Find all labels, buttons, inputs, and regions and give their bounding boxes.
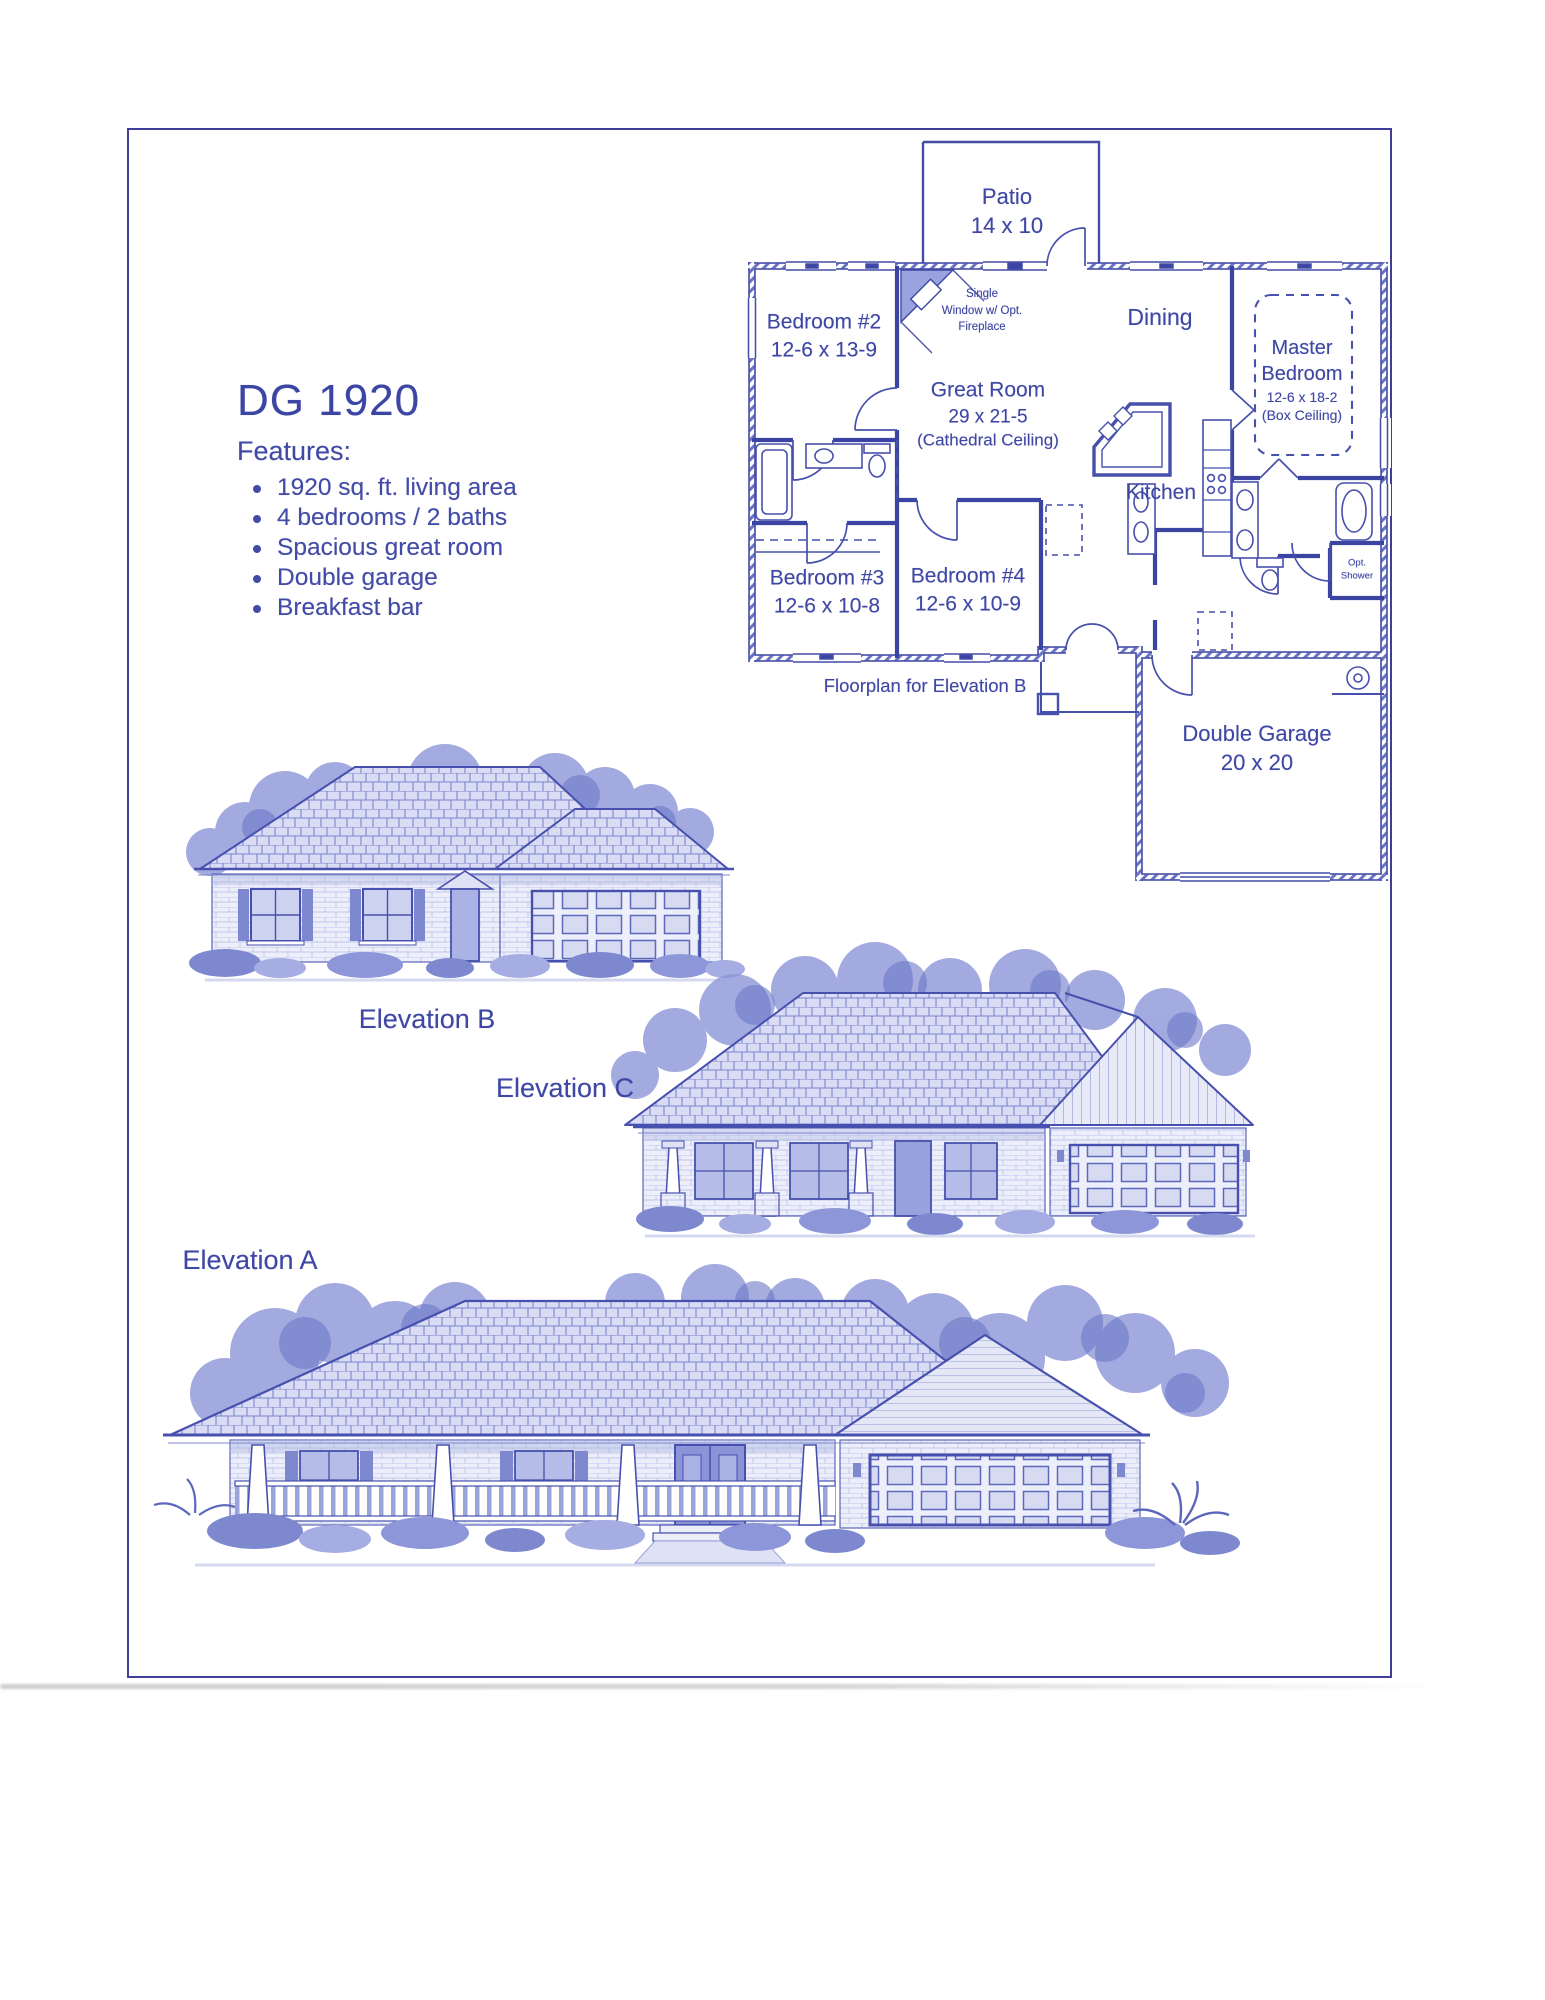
feature-item: 1920 sq. ft. living area — [253, 473, 517, 503]
opt-shower-note: Opt. Shower — [1341, 557, 1373, 584]
porch-lamp — [853, 1463, 861, 1477]
room-label-dining: Dining — [1127, 302, 1192, 332]
garage-door — [1070, 1145, 1238, 1213]
room-label-kitchen: Kitchen — [1126, 479, 1196, 507]
fireplace-note: Single Window w/ Opt. Fireplace — [942, 286, 1023, 336]
room-label-garage: Double Garage 20 x 20 — [1182, 719, 1331, 777]
elevation-a-illustration — [135, 1263, 1320, 1618]
features-list: 1920 sq. ft. living area 4 bedrooms / 2 … — [237, 473, 517, 623]
garage-door — [870, 1455, 1110, 1525]
floorplan-caption: Floorplan for Elevation B — [824, 674, 1027, 698]
porch-lamp — [1117, 1463, 1125, 1477]
room-label-master: Master Bedroom 12-6 x 18-2 (Box Ceiling) — [1261, 335, 1342, 425]
feature-item: 4 bedrooms / 2 baths — [253, 503, 517, 533]
elevation-a-label: Elevation A — [182, 1243, 317, 1279]
elevation-b-label: Elevation B — [359, 1002, 496, 1038]
title-block: DG 1920 Features: 1920 sq. ft. living ar… — [237, 376, 517, 623]
feature-item: Spacious great room — [253, 533, 517, 563]
plan-title: DG 1920 — [237, 376, 517, 426]
porch-lamp — [1243, 1150, 1250, 1162]
front-door — [451, 889, 479, 961]
room-label-bedroom2: Bedroom #2 12-6 x 13-9 — [767, 308, 881, 363]
feature-item: Breakfast bar — [253, 593, 517, 623]
elevation-c-label: Elevation C — [496, 1071, 634, 1107]
features-heading: Features: — [237, 436, 517, 467]
brochure-page: DG 1920 Features: 1920 sq. ft. living ar… — [0, 0, 1545, 2000]
scan-edge-shadow — [0, 1684, 1510, 1689]
feature-item: Double garage — [253, 563, 517, 593]
room-label-patio: Patio 14 x 10 — [971, 182, 1043, 240]
porch-lamp — [1057, 1150, 1064, 1162]
room-label-great-room: Great Room 29 x 21-5 (Cathedral Ceiling) — [917, 376, 1059, 451]
room-label-bedroom4: Bedroom #4 12-6 x 10-9 — [911, 562, 1025, 617]
floorplan-drawing — [700, 130, 1400, 900]
room-label-bedroom3: Bedroom #3 12-6 x 10-8 — [770, 564, 884, 619]
porch-railing — [235, 1481, 835, 1521]
front-door — [895, 1141, 931, 1216]
